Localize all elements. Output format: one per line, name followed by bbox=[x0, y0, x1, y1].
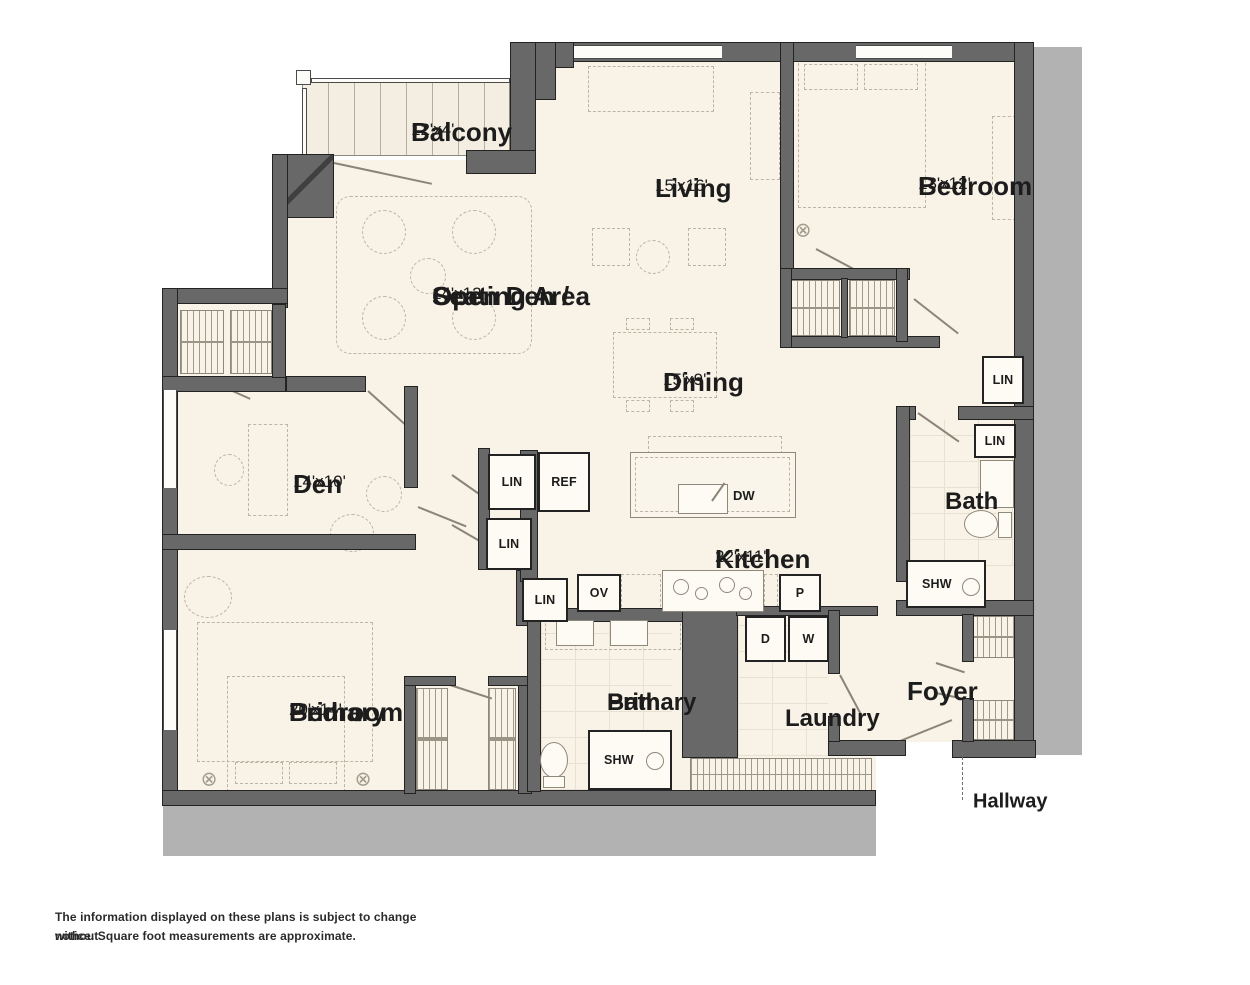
wall-segment bbox=[682, 608, 738, 758]
lounge-chair bbox=[362, 210, 406, 254]
primary-bath-sink bbox=[556, 620, 594, 646]
wall-segment bbox=[404, 386, 418, 488]
washer-label: W bbox=[803, 632, 815, 646]
balcony-dims: 12'x4' bbox=[411, 121, 454, 140]
dining-dims: 15'x9' bbox=[663, 371, 706, 390]
refrigerator: REF bbox=[538, 452, 590, 512]
round-table bbox=[366, 476, 402, 512]
wall-segment bbox=[162, 534, 416, 550]
hallway-leader-line bbox=[962, 752, 963, 800]
foyer-name: Foyer bbox=[907, 677, 978, 706]
dryer-label: D bbox=[761, 632, 770, 646]
linen-closet: LIN bbox=[486, 518, 532, 570]
oven-label: OV bbox=[590, 586, 608, 600]
wall-segment bbox=[841, 278, 848, 338]
lounge-chair bbox=[362, 296, 406, 340]
shower-drain bbox=[962, 578, 980, 596]
shower-label: SHW bbox=[604, 753, 634, 767]
wall-segment bbox=[488, 676, 532, 686]
wall-segment bbox=[272, 154, 288, 308]
wall-segment bbox=[952, 740, 1036, 758]
wall-segment bbox=[404, 676, 456, 686]
toilet-tank bbox=[998, 512, 1012, 538]
sofa bbox=[588, 66, 714, 112]
dresser bbox=[992, 116, 1016, 220]
wall-segment bbox=[510, 42, 536, 162]
primary-bedroom-dims: 20'x14' bbox=[289, 701, 342, 720]
wall-segment bbox=[896, 406, 910, 582]
open-den-dims: 14'x12' bbox=[432, 285, 485, 304]
dining-chair bbox=[670, 318, 694, 330]
closet bbox=[180, 310, 224, 374]
floor-plan: ⊗ ⊗ ⊗ LIN LIN LIN REF LIN LIN OV P D W S… bbox=[0, 0, 1250, 985]
pillow bbox=[804, 64, 858, 90]
linen-closet: LIN bbox=[488, 454, 536, 510]
side-table bbox=[592, 228, 630, 266]
wall-segment bbox=[828, 740, 906, 756]
kitchen-dims: 22'x11' bbox=[715, 548, 767, 567]
washer: W bbox=[788, 616, 829, 662]
shower-label: SHW bbox=[922, 577, 952, 591]
window bbox=[574, 45, 722, 59]
linen-closet-label: LIN bbox=[499, 537, 520, 551]
bath-name: Bath bbox=[945, 489, 998, 515]
dryer: D bbox=[745, 616, 786, 662]
wall-segment bbox=[162, 288, 288, 304]
disclaimer-text: The information displayed on these plans… bbox=[55, 908, 455, 927]
dining-chair bbox=[626, 400, 650, 412]
linen-closet-label: LIN bbox=[535, 593, 556, 607]
wall-segment bbox=[828, 610, 840, 674]
desk bbox=[248, 424, 288, 516]
desk-chair bbox=[214, 454, 244, 486]
closet bbox=[849, 280, 895, 336]
light-symbol: ⊗ bbox=[355, 767, 372, 792]
dining-chair bbox=[626, 318, 650, 330]
balcony-rail-post bbox=[296, 70, 311, 85]
primary-bath-name: Bath bbox=[607, 690, 660, 716]
den-dims: 14'x10' bbox=[293, 473, 346, 492]
closet bbox=[416, 688, 448, 790]
coffee-table bbox=[636, 240, 670, 274]
closet bbox=[790, 280, 840, 336]
closet bbox=[488, 688, 516, 790]
window bbox=[163, 630, 177, 730]
wall-segment bbox=[162, 376, 286, 392]
closet bbox=[690, 758, 872, 791]
bedroom-dims: 13'x12' bbox=[918, 175, 971, 194]
closet bbox=[230, 310, 272, 374]
living-dims: 15'x16' bbox=[655, 177, 708, 196]
pantry-label: P bbox=[796, 586, 805, 600]
wall-segment bbox=[896, 268, 908, 342]
wall-segment bbox=[404, 676, 416, 794]
linen-closet: LIN bbox=[974, 424, 1016, 458]
side-table bbox=[688, 228, 726, 266]
linen-closet-label: LIN bbox=[993, 373, 1014, 387]
wall-segment bbox=[958, 406, 1034, 420]
pantry: P bbox=[779, 574, 821, 612]
oven: OV bbox=[577, 574, 621, 612]
pillow bbox=[235, 762, 283, 784]
cooktop bbox=[662, 570, 764, 612]
shower-drain bbox=[646, 752, 664, 770]
wall-segment bbox=[780, 336, 940, 348]
dishwasher-label: DW bbox=[733, 488, 755, 503]
wall-segment bbox=[466, 150, 536, 174]
toilet-tank bbox=[543, 776, 565, 788]
toilet bbox=[540, 742, 568, 778]
lounge-chair bbox=[184, 576, 232, 618]
wall-segment bbox=[962, 614, 974, 662]
linen-closet-label: LIN bbox=[985, 434, 1006, 448]
wall-segment bbox=[272, 304, 286, 378]
wall-segment bbox=[780, 42, 794, 274]
linen-closet-label: LIN bbox=[502, 475, 523, 489]
wall-segment bbox=[527, 612, 541, 792]
lounge-chair bbox=[452, 210, 496, 254]
linen-closet: LIN bbox=[522, 578, 568, 622]
light-symbol: ⊗ bbox=[795, 218, 812, 243]
disclaimer-line2: notice. Square foot measurements are app… bbox=[55, 927, 356, 946]
kitchen-counter bbox=[621, 574, 661, 612]
primary-bath-sink bbox=[610, 620, 648, 646]
pillow bbox=[289, 762, 337, 784]
armchair bbox=[750, 92, 780, 180]
refrigerator-label: REF bbox=[551, 475, 577, 489]
window bbox=[856, 45, 952, 59]
window bbox=[163, 390, 177, 488]
wall-segment bbox=[780, 268, 792, 348]
dining-chair bbox=[670, 400, 694, 412]
laundry-name: Laundry bbox=[785, 706, 880, 732]
balcony-rail bbox=[311, 78, 510, 83]
wall-segment bbox=[286, 376, 366, 392]
balcony-rail bbox=[302, 88, 307, 156]
room-label-hallway: Hallway bbox=[973, 791, 1047, 814]
linen-closet: LIN bbox=[982, 356, 1024, 404]
light-symbol: ⊗ bbox=[201, 767, 218, 792]
pillow bbox=[864, 64, 918, 90]
